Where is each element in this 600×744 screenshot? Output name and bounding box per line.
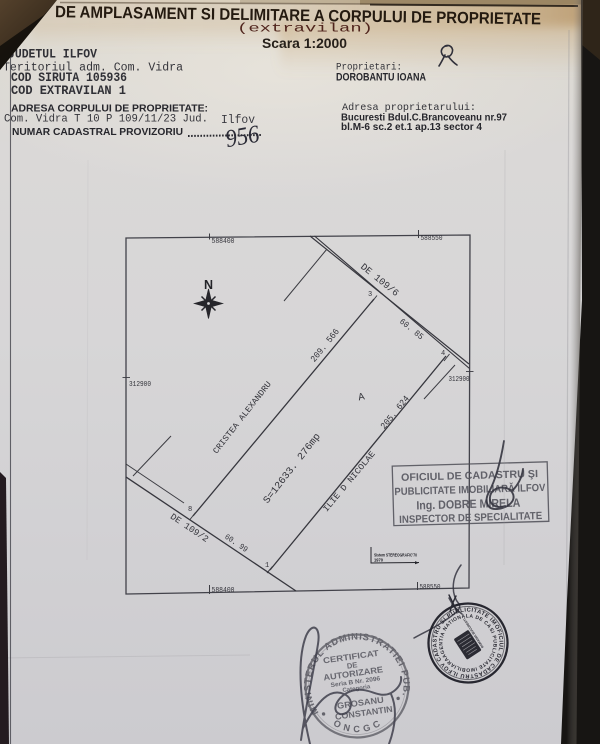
svg-text:1: 1 [265,562,269,570]
svg-text:588550: 588550 [421,235,443,243]
svg-text:Ing. DOBRE MIRELA: Ing. DOBRE MIRELA [416,496,521,513]
svg-text:Scara 1:2000: Scara 1:2000 [262,36,347,51]
svg-text:312900: 312900 [449,376,470,384]
svg-text:COD SIRUTA 105936: COD SIRUTA 105936 [11,71,127,85]
svg-text:(extravilan): (extravilan) [237,23,373,36]
svg-text:588550: 588550 [420,584,441,592]
svg-text:588400: 588400 [212,238,235,246]
svg-text:312900: 312900 [129,381,151,389]
svg-text:bl.M-6 sc.2 et.1 ap.13 sector: bl.M-6 sc.2 et.1 ap.13 sector 4 [341,121,482,133]
svg-text:COD EXTRAVILAN 1: COD EXTRAVILAN 1 [11,84,126,98]
svg-text:JUDETUL ILFOV: JUDETUL ILFOV [8,48,97,62]
svg-text:DOROBANTU IOANA: DOROBANTU IOANA [336,72,426,84]
svg-text:588400: 588400 [212,587,235,595]
svg-text:3: 3 [368,291,372,299]
svg-text:NUMAR CADASTRAL PROVIZORIU: NUMAR CADASTRAL PROVIZORIU [12,126,183,138]
svg-text:1970: 1970 [374,558,384,563]
svg-text:8: 8 [188,506,192,514]
svg-text:Com. Vidra T 10 P 109/11/23 Ju: Com. Vidra T 10 P 109/11/23 Jud. [4,114,208,126]
